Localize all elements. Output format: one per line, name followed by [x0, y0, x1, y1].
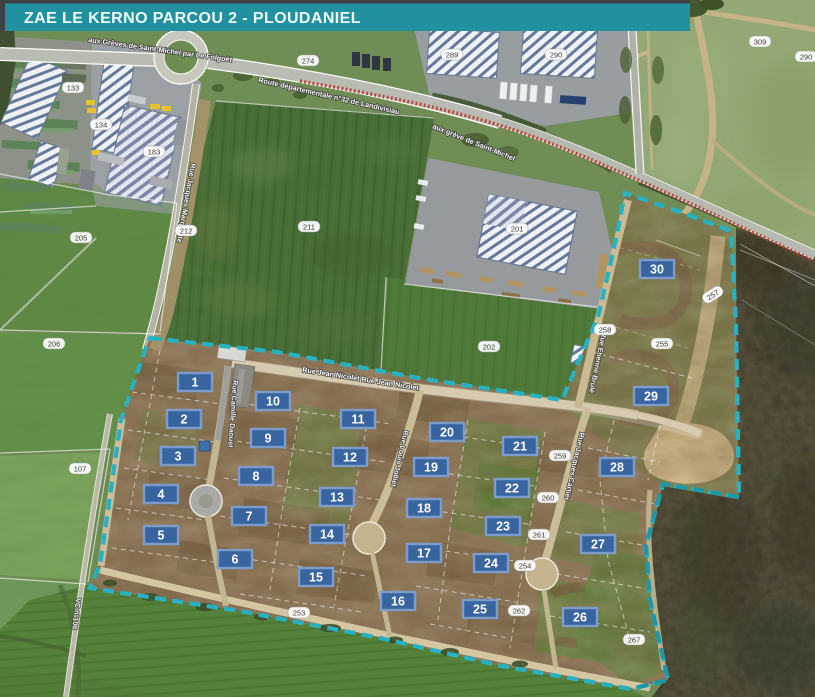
svg-text:10: 10 [266, 395, 280, 409]
svg-text:274: 274 [302, 57, 315, 66]
svg-text:9: 9 [265, 432, 272, 446]
svg-text:260: 260 [542, 494, 555, 503]
svg-text:29: 29 [644, 390, 658, 404]
svg-text:23: 23 [496, 520, 510, 534]
svg-text:1: 1 [192, 376, 199, 390]
svg-text:20: 20 [440, 426, 454, 440]
svg-text:183: 183 [148, 148, 161, 157]
svg-text:309: 309 [754, 38, 767, 47]
svg-text:3: 3 [175, 450, 182, 464]
svg-text:262: 262 [513, 607, 526, 616]
svg-text:17: 17 [417, 547, 431, 561]
svg-text:211: 211 [303, 223, 315, 232]
svg-text:27: 27 [591, 538, 605, 552]
svg-text:133: 133 [67, 84, 80, 93]
svg-text:255: 255 [656, 340, 669, 349]
svg-text:254: 254 [519, 562, 532, 571]
svg-text:206: 206 [48, 340, 61, 349]
svg-text:15: 15 [309, 571, 323, 585]
svg-text:261: 261 [533, 531, 546, 540]
svg-text:290: 290 [550, 51, 563, 60]
svg-text:16: 16 [391, 595, 405, 609]
svg-text:25: 25 [473, 603, 487, 617]
svg-text:ZAE LE KERNO PARCOU 2 - PLOUDA: ZAE LE KERNO PARCOU 2 - PLOUDANIEL [24, 10, 361, 27]
svg-text:259: 259 [554, 452, 567, 461]
svg-text:7: 7 [246, 510, 253, 524]
svg-text:28: 28 [610, 461, 624, 475]
svg-text:258: 258 [599, 326, 612, 335]
svg-text:19: 19 [424, 461, 438, 475]
svg-text:201: 201 [511, 225, 524, 234]
svg-text:107: 107 [74, 465, 87, 474]
svg-text:14: 14 [320, 528, 334, 542]
svg-text:202: 202 [483, 343, 496, 352]
svg-text:289: 289 [446, 51, 459, 60]
svg-text:205: 205 [75, 234, 88, 243]
svg-text:5: 5 [158, 529, 165, 543]
svg-text:21: 21 [513, 440, 527, 454]
svg-text:26: 26 [573, 611, 587, 625]
svg-text:253: 253 [293, 609, 306, 618]
svg-text:134: 134 [95, 121, 108, 130]
svg-text:4: 4 [158, 488, 165, 502]
svg-text:12: 12 [343, 451, 357, 465]
svg-text:18: 18 [417, 502, 431, 516]
svg-text:290: 290 [800, 53, 813, 62]
svg-text:11: 11 [351, 413, 364, 427]
svg-text:6: 6 [232, 553, 239, 567]
svg-text:2: 2 [181, 413, 188, 427]
svg-text:267: 267 [628, 636, 641, 645]
svg-text:13: 13 [330, 491, 344, 505]
svg-text:8: 8 [253, 470, 260, 484]
svg-text:30: 30 [650, 263, 664, 277]
svg-text:22: 22 [505, 482, 519, 496]
svg-text:24: 24 [484, 557, 498, 571]
svg-text:212: 212 [180, 227, 193, 236]
